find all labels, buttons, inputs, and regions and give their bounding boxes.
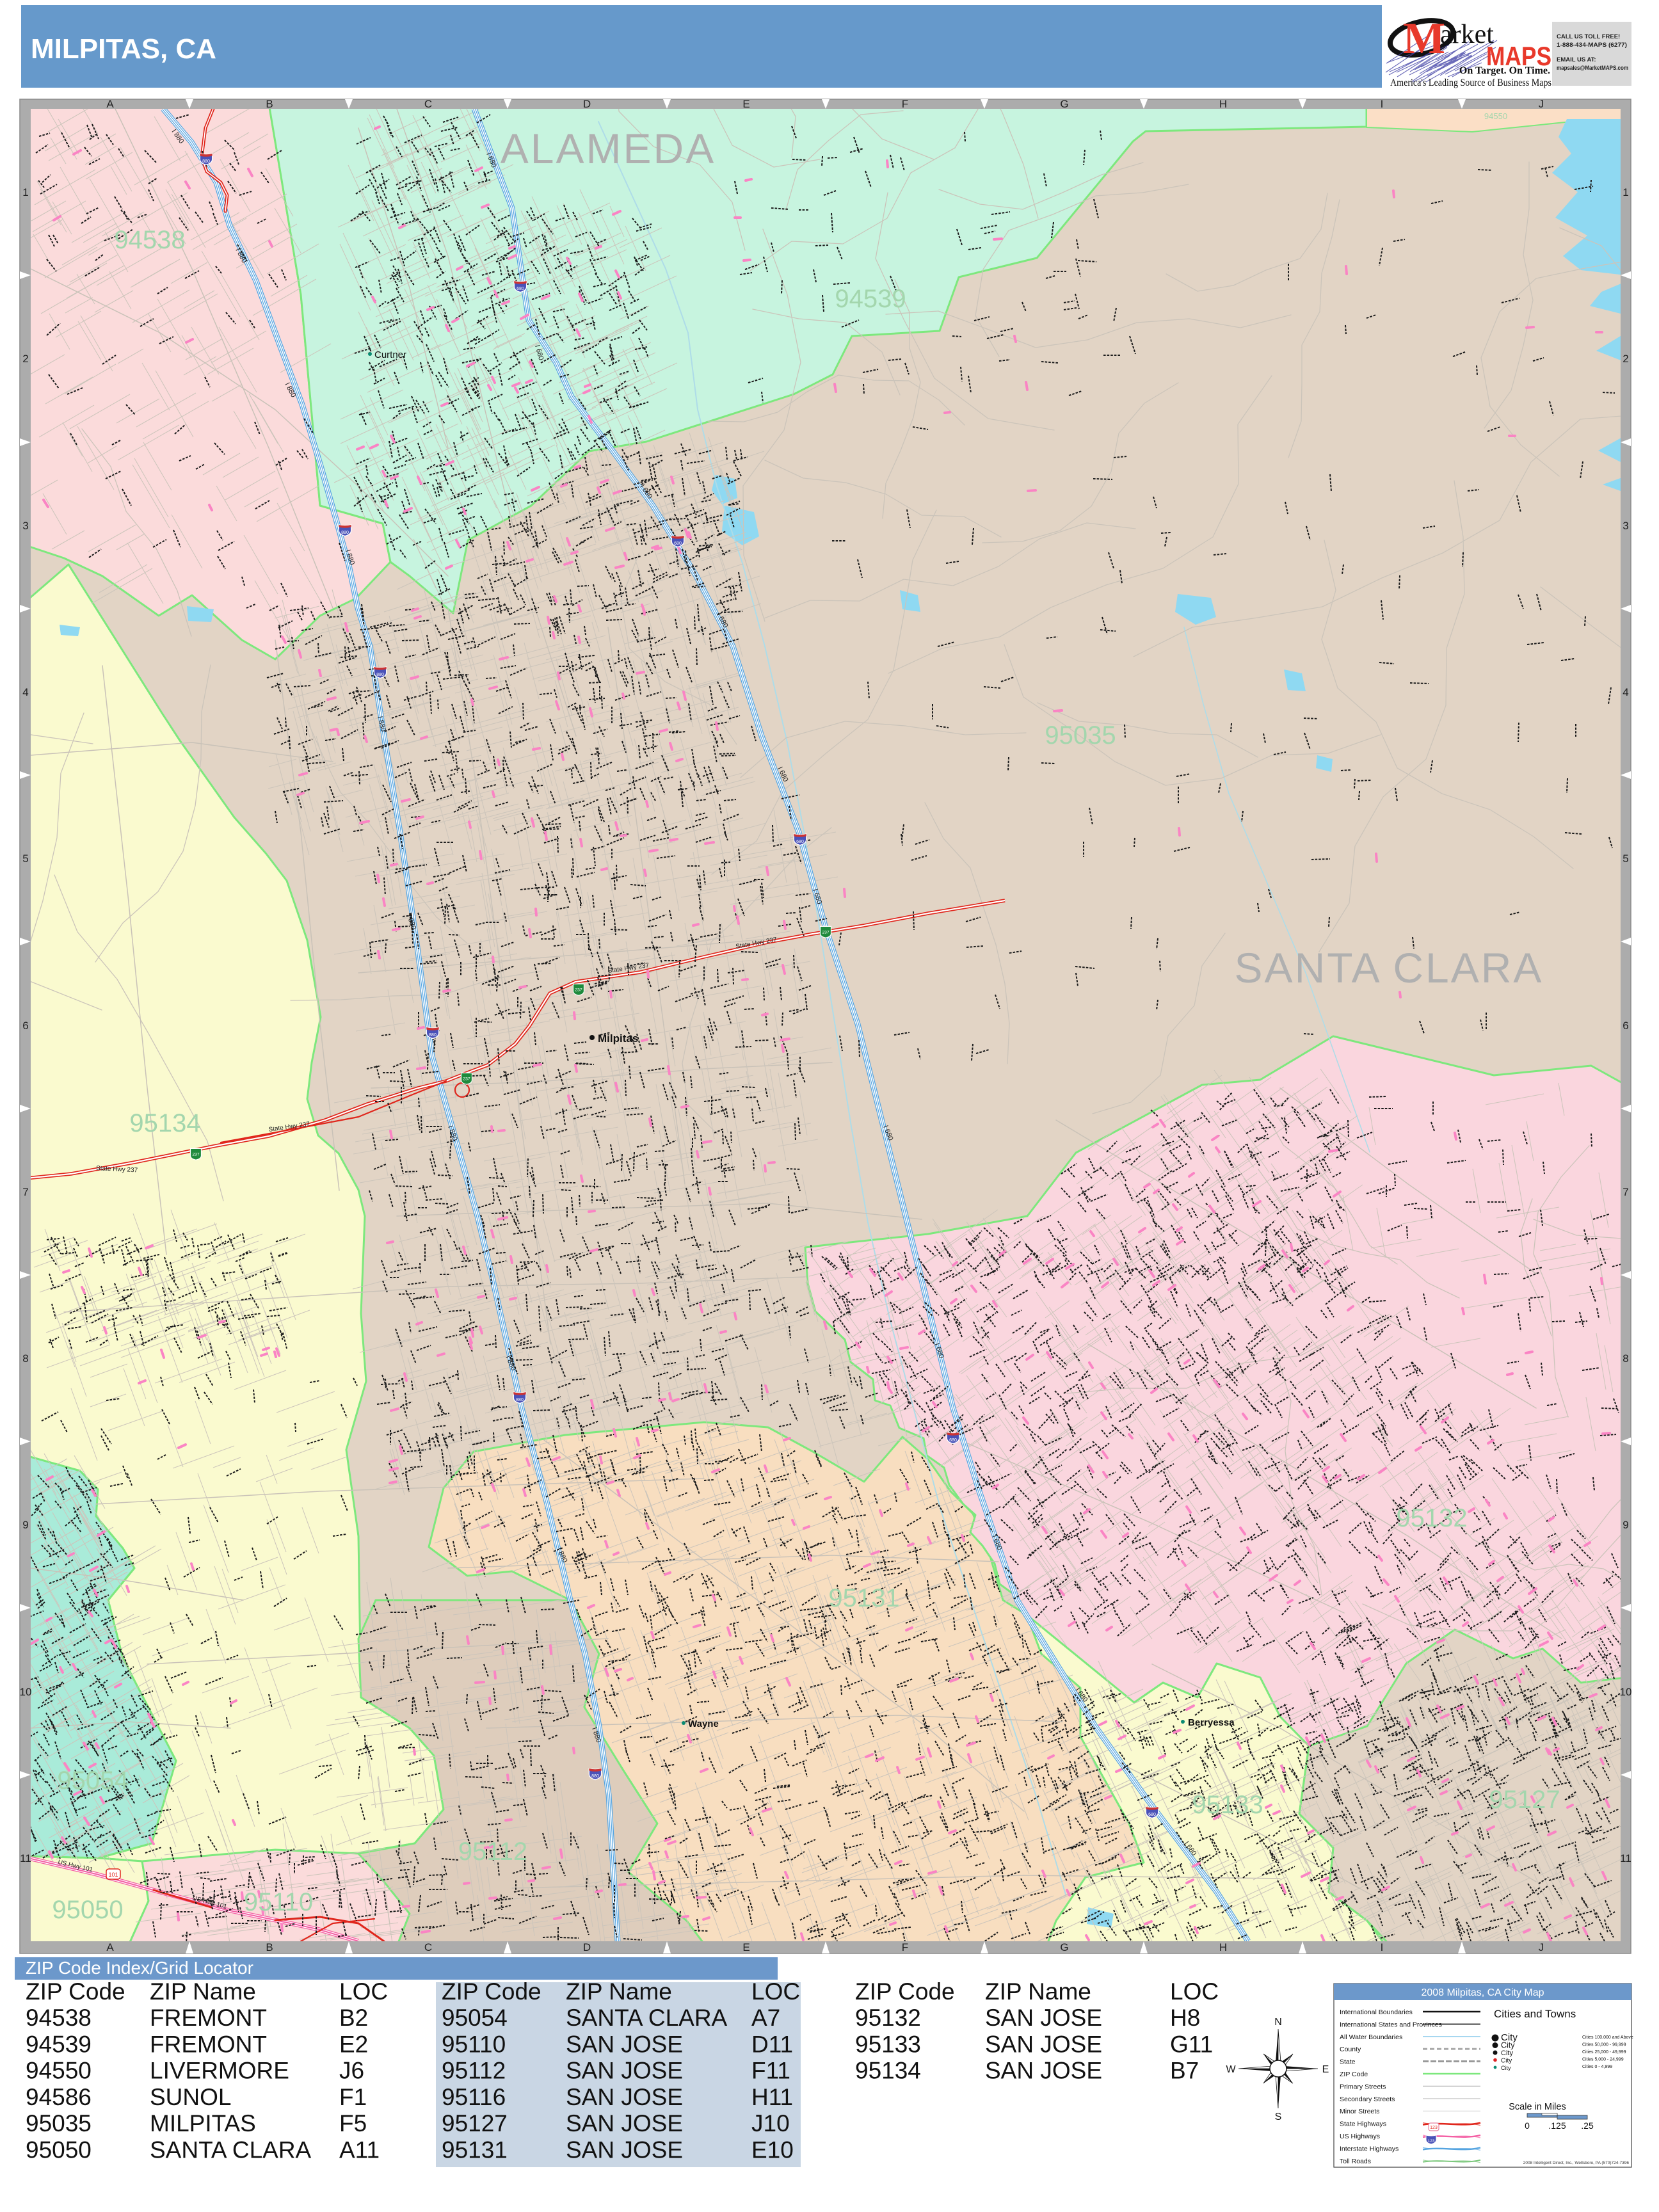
svg-text:123: 123 bbox=[1430, 2126, 1438, 2130]
svg-text:SAN JOSE: SAN JOSE bbox=[985, 2058, 1102, 2084]
svg-text:Cities and Towns: Cities and Towns bbox=[1494, 2008, 1576, 2020]
svg-text:F11: F11 bbox=[751, 2058, 790, 2084]
svg-text:123: 123 bbox=[1428, 2139, 1435, 2144]
svg-text:LOC: LOC bbox=[751, 1978, 800, 2005]
svg-text:F: F bbox=[902, 1941, 908, 1953]
svg-text:mapsales@MarketMAPS.com: mapsales@MarketMAPS.com bbox=[1557, 65, 1628, 72]
svg-text:101: 101 bbox=[108, 1871, 118, 1878]
svg-text:237: 237 bbox=[822, 930, 829, 934]
svg-text:95035: 95035 bbox=[26, 2110, 92, 2136]
svg-text:US Highways: US Highways bbox=[1340, 2133, 1380, 2140]
svg-text:C: C bbox=[424, 98, 432, 110]
svg-text:SANTA CLARA: SANTA CLARA bbox=[150, 2137, 312, 2163]
svg-text:E: E bbox=[742, 1941, 749, 1953]
svg-text:A7: A7 bbox=[751, 2005, 780, 2031]
svg-text:5: 5 bbox=[1623, 853, 1628, 865]
svg-text:94550: 94550 bbox=[1484, 111, 1507, 121]
svg-text:County: County bbox=[1340, 2046, 1361, 2053]
svg-text:680: 680 bbox=[1148, 1813, 1156, 1817]
svg-text:Milpitas: Milpitas bbox=[598, 1032, 638, 1045]
svg-text:0: 0 bbox=[1525, 2120, 1530, 2131]
svg-text:Primary Streets: Primary Streets bbox=[1340, 2083, 1386, 2090]
svg-text:M: M bbox=[1403, 14, 1445, 63]
svg-text:SAN JOSE: SAN JOSE bbox=[566, 2110, 683, 2136]
svg-text:City: City bbox=[1501, 2065, 1511, 2071]
svg-text:1: 1 bbox=[22, 186, 28, 198]
svg-text:B2: B2 bbox=[339, 2005, 368, 2031]
svg-text:LOC: LOC bbox=[1170, 1978, 1219, 2005]
svg-text:J6: J6 bbox=[339, 2058, 364, 2084]
svg-text:5: 5 bbox=[22, 853, 28, 865]
svg-text:FREMONT: FREMONT bbox=[150, 2005, 267, 2031]
svg-text:H8: H8 bbox=[1170, 2005, 1200, 2031]
svg-text:Cities 25,000 - 49,999: Cities 25,000 - 49,999 bbox=[1582, 2050, 1626, 2055]
svg-text:1: 1 bbox=[1623, 186, 1628, 198]
svg-text:880: 880 bbox=[516, 1398, 524, 1402]
svg-text:SAN JOSE: SAN JOSE bbox=[566, 2084, 683, 2110]
svg-text:680: 680 bbox=[674, 541, 682, 546]
svg-text:94538: 94538 bbox=[114, 226, 185, 254]
svg-text:Cities 50,000 - 99,999: Cities 50,000 - 99,999 bbox=[1582, 2043, 1626, 2048]
svg-text:G: G bbox=[1060, 98, 1068, 110]
svg-text:H: H bbox=[1219, 98, 1227, 110]
svg-text:F5: F5 bbox=[339, 2110, 367, 2136]
svg-text:Cities 0 - 4,999: Cities 0 - 4,999 bbox=[1582, 2065, 1612, 2069]
svg-text:International Boundaries: International Boundaries bbox=[1340, 2008, 1413, 2016]
svg-text:Curtner: Curtner bbox=[374, 349, 406, 360]
svg-text:SAN JOSE: SAN JOSE bbox=[566, 2031, 683, 2057]
svg-text:8: 8 bbox=[22, 1352, 28, 1365]
svg-text:S: S bbox=[1275, 2112, 1282, 2122]
svg-text:11: 11 bbox=[20, 1852, 31, 1864]
svg-text:1-888-434-MAPS (6277): 1-888-434-MAPS (6277) bbox=[1557, 42, 1627, 49]
svg-text:MILPITAS, CA: MILPITAS, CA bbox=[31, 33, 216, 65]
svg-text:B7: B7 bbox=[1170, 2058, 1199, 2084]
svg-text:94538: 94538 bbox=[26, 2005, 92, 2031]
svg-text:Cities 100,000 and Above: Cities 100,000 and Above bbox=[1582, 2035, 1633, 2040]
svg-text:95054: 95054 bbox=[57, 1767, 128, 1795]
svg-text:SAN JOSE: SAN JOSE bbox=[566, 2137, 683, 2163]
svg-text:ZIP Code: ZIP Code bbox=[855, 1978, 955, 2005]
svg-text:City: City bbox=[1501, 2058, 1512, 2065]
svg-text:95134: 95134 bbox=[129, 1109, 200, 1137]
svg-text:Secondary Streets: Secondary Streets bbox=[1340, 2096, 1395, 2103]
svg-text:237: 237 bbox=[463, 1077, 470, 1081]
svg-text:State: State bbox=[1340, 2058, 1356, 2066]
svg-text:6: 6 bbox=[1623, 1020, 1628, 1032]
svg-text:95116: 95116 bbox=[442, 2084, 506, 2110]
svg-text:ZIP Code Index/Grid Locator: ZIP Code Index/Grid Locator bbox=[26, 1958, 253, 1978]
svg-text:America's Leading Source of B: America's Leading Source of Business Map… bbox=[1390, 77, 1551, 88]
svg-text:D11: D11 bbox=[751, 2031, 793, 2057]
svg-text:E2: E2 bbox=[339, 2031, 368, 2057]
svg-text:J: J bbox=[1539, 1941, 1544, 1953]
svg-text:2: 2 bbox=[22, 353, 28, 365]
svg-text:8: 8 bbox=[1623, 1352, 1628, 1365]
svg-text:SANTA CLARA: SANTA CLARA bbox=[566, 2005, 728, 2031]
svg-text:Interstate Highways: Interstate Highways bbox=[1340, 2145, 1399, 2152]
svg-text:EMAIL US AT:: EMAIL US AT: bbox=[1557, 56, 1596, 63]
svg-text:95127: 95127 bbox=[1489, 1786, 1560, 1814]
svg-text:D: D bbox=[583, 1941, 591, 1953]
svg-text:95131: 95131 bbox=[442, 2137, 508, 2163]
svg-text:J10: J10 bbox=[751, 2110, 790, 2136]
svg-text:A: A bbox=[106, 98, 114, 110]
svg-text:680: 680 bbox=[517, 287, 524, 291]
svg-text:.125: .125 bbox=[1548, 2120, 1566, 2131]
svg-text:State Highways: State Highways bbox=[1340, 2120, 1386, 2128]
svg-text:A: A bbox=[106, 1941, 114, 1953]
svg-text:4: 4 bbox=[1623, 686, 1628, 698]
svg-text:C: C bbox=[424, 1941, 432, 1953]
svg-text:ZIP Name: ZIP Name bbox=[150, 1978, 256, 2005]
svg-text:Berryessa: Berryessa bbox=[1188, 1717, 1235, 1728]
svg-text:3: 3 bbox=[1623, 520, 1628, 532]
svg-text:94586: 94586 bbox=[26, 2084, 92, 2110]
svg-text:6: 6 bbox=[22, 1020, 28, 1032]
svg-text:ZIP Code: ZIP Code bbox=[1340, 2071, 1368, 2078]
svg-text:95132: 95132 bbox=[1396, 1504, 1467, 1532]
svg-text:On Target. On Time.: On Target. On Time. bbox=[1459, 65, 1550, 76]
svg-text:N: N bbox=[1274, 2017, 1282, 2028]
svg-text:95110: 95110 bbox=[442, 2031, 506, 2057]
svg-text:ZIP Name: ZIP Name bbox=[566, 1978, 672, 2005]
svg-text:ZIP Name: ZIP Name bbox=[985, 1978, 1091, 2005]
svg-text:95054: 95054 bbox=[442, 2005, 508, 2031]
svg-text:10: 10 bbox=[20, 1686, 32, 1698]
svg-text:G11: G11 bbox=[1170, 2031, 1213, 2057]
svg-text:237: 237 bbox=[575, 988, 582, 992]
svg-text:95112: 95112 bbox=[442, 2058, 506, 2084]
svg-text:SUNOL: SUNOL bbox=[150, 2084, 231, 2110]
svg-text:9: 9 bbox=[1623, 1519, 1628, 1531]
svg-text:W: W bbox=[1226, 2064, 1236, 2075]
svg-text:SAN JOSE: SAN JOSE bbox=[566, 2058, 683, 2084]
svg-text:94539: 94539 bbox=[835, 285, 906, 313]
svg-text:International States and Provi: International States and Provinces bbox=[1340, 2021, 1442, 2028]
svg-text:10: 10 bbox=[1620, 1686, 1632, 1698]
svg-text:J: J bbox=[1539, 98, 1544, 110]
svg-text:FREMONT: FREMONT bbox=[150, 2031, 267, 2057]
svg-text:Minor Streets: Minor Streets bbox=[1340, 2108, 1379, 2115]
svg-text:880: 880 bbox=[429, 1033, 437, 1038]
svg-text:Toll Roads: Toll Roads bbox=[1340, 2158, 1371, 2165]
svg-text:B: B bbox=[266, 1941, 273, 1953]
svg-text:E10: E10 bbox=[751, 2137, 794, 2163]
svg-text:All Water Boundaries: All Water Boundaries bbox=[1340, 2033, 1402, 2041]
svg-text:7: 7 bbox=[1623, 1186, 1628, 1198]
svg-text:680: 680 bbox=[949, 1438, 957, 1443]
svg-text:95050: 95050 bbox=[52, 1896, 123, 1924]
svg-text:CALL US TOLL FREE!: CALL US TOLL FREE! bbox=[1557, 33, 1620, 40]
svg-text:SAN JOSE: SAN JOSE bbox=[985, 2031, 1102, 2057]
svg-text:95112: 95112 bbox=[458, 1838, 527, 1866]
svg-text:95127: 95127 bbox=[442, 2110, 508, 2136]
svg-text:95035: 95035 bbox=[1045, 721, 1116, 749]
svg-text:ZIP Code: ZIP Code bbox=[442, 1978, 541, 2005]
svg-text:Wayne: Wayne bbox=[688, 1719, 719, 1729]
svg-text:880: 880 bbox=[376, 673, 384, 677]
svg-text:D: D bbox=[583, 98, 591, 110]
svg-text:95050: 95050 bbox=[26, 2137, 92, 2163]
svg-text:ZIP Code: ZIP Code bbox=[26, 1978, 125, 2005]
svg-text:SANTA CLARA: SANTA CLARA bbox=[1235, 944, 1544, 991]
svg-text:880: 880 bbox=[591, 1774, 599, 1779]
svg-text:LOC: LOC bbox=[339, 1978, 388, 2005]
svg-text:E: E bbox=[742, 98, 749, 110]
svg-text:3: 3 bbox=[22, 520, 28, 532]
svg-text:.25: .25 bbox=[1581, 2120, 1594, 2131]
svg-text:SAN JOSE: SAN JOSE bbox=[985, 2005, 1102, 2031]
svg-text:H: H bbox=[1219, 1941, 1227, 1953]
svg-text:G: G bbox=[1060, 1941, 1068, 1953]
svg-text:MILPITAS: MILPITAS bbox=[150, 2110, 256, 2136]
svg-text:LIVERMORE: LIVERMORE bbox=[150, 2058, 289, 2084]
svg-text:95134: 95134 bbox=[855, 2058, 921, 2084]
svg-text:94539: 94539 bbox=[26, 2031, 92, 2057]
svg-text:F1: F1 bbox=[339, 2084, 367, 2110]
svg-text:95133: 95133 bbox=[1192, 1791, 1263, 1819]
svg-text:880: 880 bbox=[202, 159, 210, 164]
svg-text:Cities 5,000 - 24,999: Cities 5,000 - 24,999 bbox=[1582, 2058, 1624, 2062]
svg-text:City: City bbox=[1501, 2041, 1515, 2050]
svg-text:A11: A11 bbox=[339, 2137, 380, 2163]
svg-text:H11: H11 bbox=[751, 2084, 793, 2110]
svg-text:2008 Intelligent Direct, Inc.,: 2008 Intelligent Direct, Inc., Wellsboro… bbox=[1523, 2161, 1630, 2165]
svg-text:7: 7 bbox=[22, 1186, 28, 1198]
svg-text:94550: 94550 bbox=[26, 2058, 92, 2084]
svg-text:I: I bbox=[1381, 1941, 1384, 1953]
svg-text:2: 2 bbox=[1623, 353, 1628, 365]
svg-text:E: E bbox=[1322, 2064, 1329, 2075]
svg-text:Scale in Miles: Scale in Miles bbox=[1509, 2102, 1566, 2112]
svg-text:City: City bbox=[1501, 2049, 1513, 2057]
svg-text:95131: 95131 bbox=[828, 1584, 899, 1612]
svg-text:F: F bbox=[902, 98, 908, 110]
svg-text:680: 680 bbox=[796, 840, 804, 844]
svg-text:237: 237 bbox=[192, 1152, 200, 1157]
svg-text:ALAMEDA: ALAMEDA bbox=[501, 125, 716, 172]
svg-text:I: I bbox=[1381, 98, 1384, 110]
svg-text:95110: 95110 bbox=[244, 1888, 313, 1916]
svg-text:9: 9 bbox=[22, 1519, 28, 1531]
svg-text:95133: 95133 bbox=[855, 2031, 921, 2057]
svg-text:11: 11 bbox=[1620, 1852, 1631, 1864]
svg-text:95132: 95132 bbox=[855, 2005, 921, 2031]
svg-text:2008 Milpitas, CA City Map: 2008 Milpitas, CA City Map bbox=[1421, 1987, 1544, 1998]
svg-text:4: 4 bbox=[22, 686, 28, 698]
svg-text:880: 880 bbox=[341, 531, 349, 535]
svg-text:B: B bbox=[266, 98, 273, 110]
